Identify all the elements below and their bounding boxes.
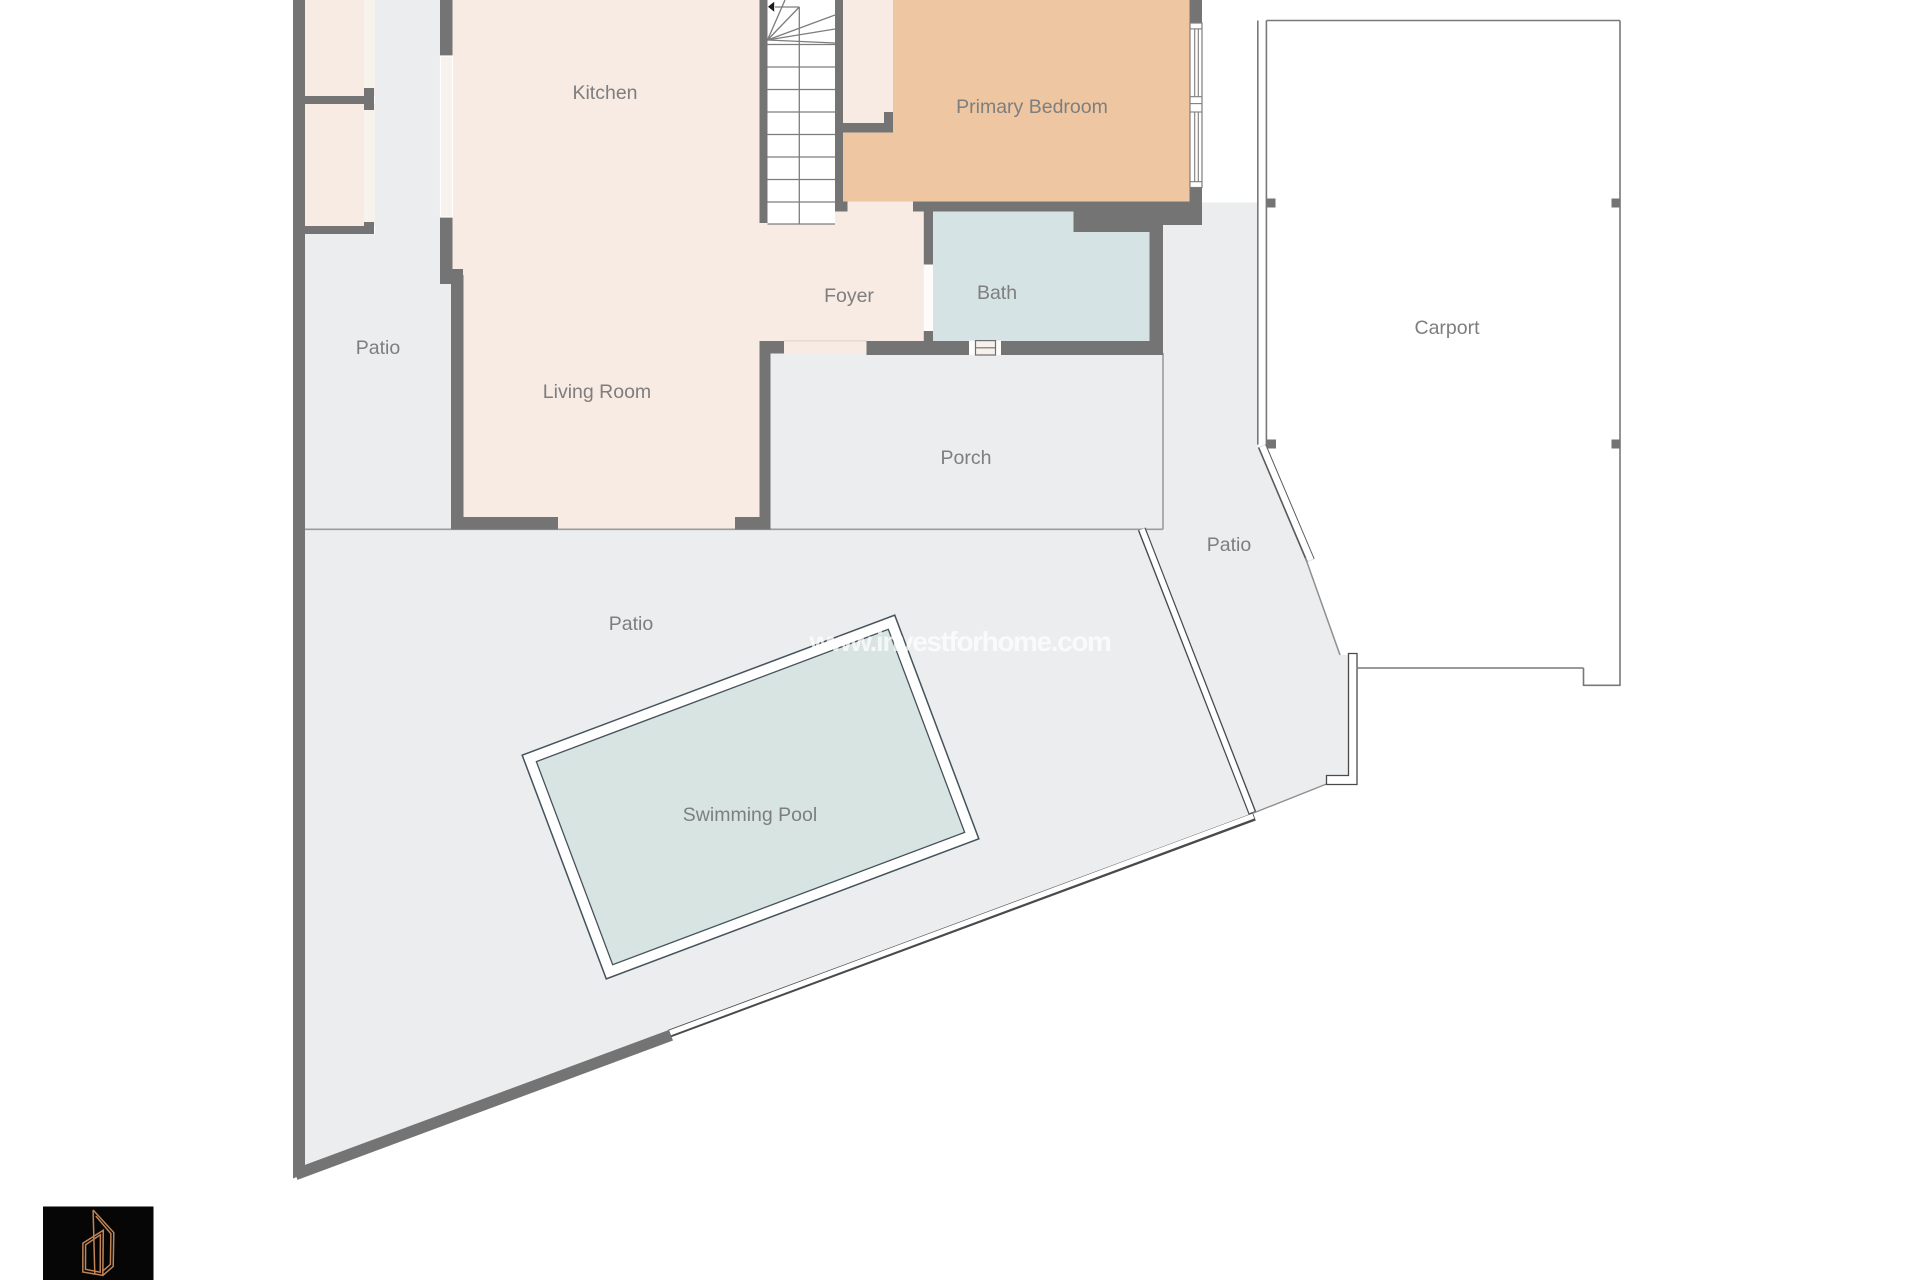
svg-text:Swimming Pool: Swimming Pool [683, 804, 817, 826]
svg-text:Foyer: Foyer [824, 285, 874, 307]
svg-text:Carport: Carport [1414, 317, 1480, 339]
svg-text:Bath: Bath [977, 282, 1017, 304]
svg-text:Porch: Porch [941, 447, 992, 469]
svg-text:Kitchen: Kitchen [572, 82, 637, 104]
svg-text:Patio: Patio [609, 613, 654, 635]
svg-text:Primary Bedroom: Primary Bedroom [956, 96, 1108, 118]
svg-text:Patio: Patio [356, 337, 401, 359]
svg-text:Living Room: Living Room [543, 381, 651, 403]
svg-text:Patio: Patio [1207, 534, 1252, 556]
svg-text:www.investforhome.com: www.investforhome.com [809, 626, 1111, 657]
